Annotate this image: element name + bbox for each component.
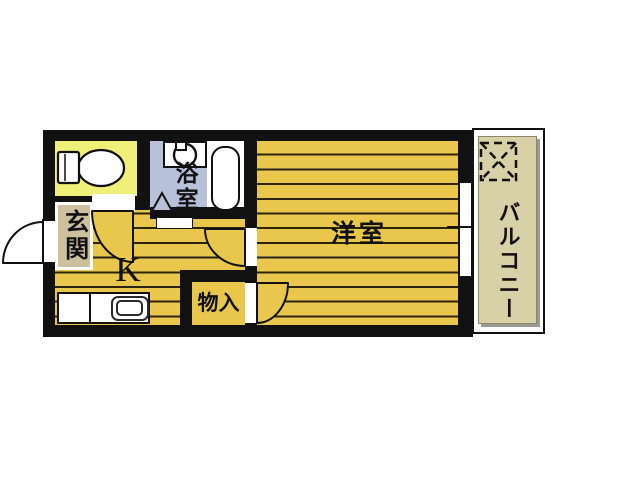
storage-label: 物入 <box>192 291 245 316</box>
floor-plan: 玄関 浴室 K 洋室 物入 バルコニー <box>0 0 640 480</box>
entrance-label-box: 玄関 <box>55 202 93 270</box>
toilet-room <box>55 141 137 196</box>
window-opening <box>459 182 472 277</box>
toilet-door-opening <box>92 194 135 211</box>
kitchen-sink-icon <box>111 296 149 321</box>
wall-bath-right <box>244 141 257 207</box>
kitchen-label: K <box>110 251 146 289</box>
entrance-door-arc <box>3 222 43 263</box>
balcony-label: バルコニー <box>494 194 520 328</box>
bathtub-icon <box>211 146 240 211</box>
entrance-label: 玄関 <box>58 205 90 267</box>
counter-divider <box>89 294 91 322</box>
western-room-label: 洋室 <box>329 220 389 248</box>
bathroom-door-opening <box>156 217 193 229</box>
bathroom-label: 浴室 <box>170 160 198 214</box>
storage-wall-left <box>180 270 192 325</box>
storage-door-opening <box>245 283 257 323</box>
kitchen-room-door-opening <box>245 228 257 266</box>
